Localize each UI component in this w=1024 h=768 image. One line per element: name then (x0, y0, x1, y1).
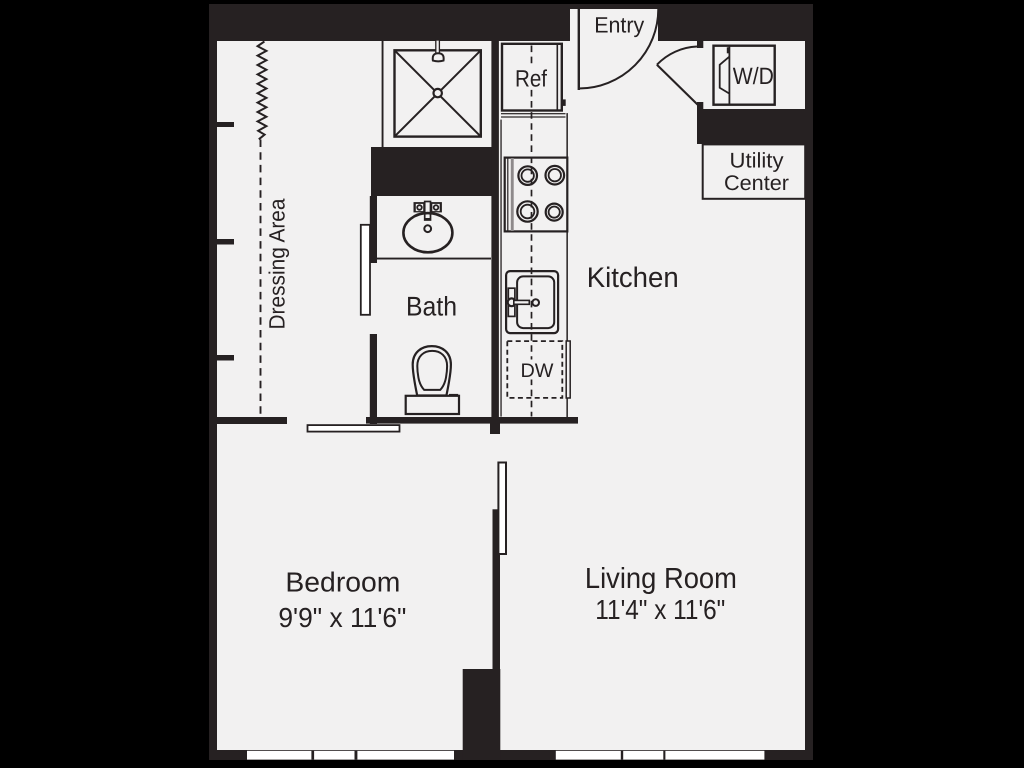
svg-text:Kitchen: Kitchen (587, 261, 679, 293)
svg-text:Entry: Entry (594, 12, 645, 37)
svg-text:Living Room: Living Room (585, 563, 737, 595)
svg-text:Bath: Bath (406, 291, 457, 321)
svg-text:Ref: Ref (515, 66, 547, 92)
svg-text:Dressing Area: Dressing Area (265, 198, 290, 330)
svg-text:9'9" x 11'6": 9'9" x 11'6" (278, 602, 406, 633)
svg-text:Bedroom: Bedroom (285, 567, 400, 598)
svg-text:Utility: Utility (730, 149, 784, 172)
svg-text:DW: DW (521, 360, 554, 382)
svg-text:11'4" x 11'6": 11'4" x 11'6" (595, 594, 725, 625)
svg-text:W/D: W/D (733, 64, 774, 90)
svg-text:Center: Center (724, 172, 789, 195)
